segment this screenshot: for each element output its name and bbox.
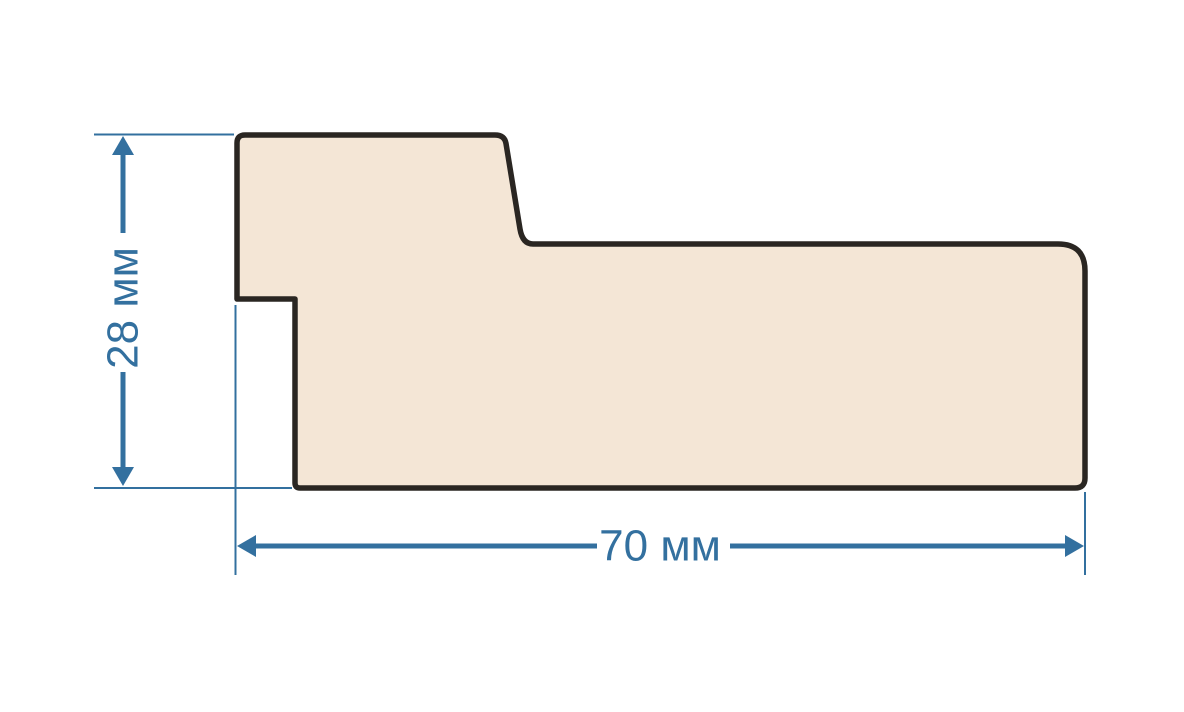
svg-text:70 мм: 70 мм (599, 522, 721, 571)
svg-text:28 мм: 28 мм (99, 247, 148, 369)
